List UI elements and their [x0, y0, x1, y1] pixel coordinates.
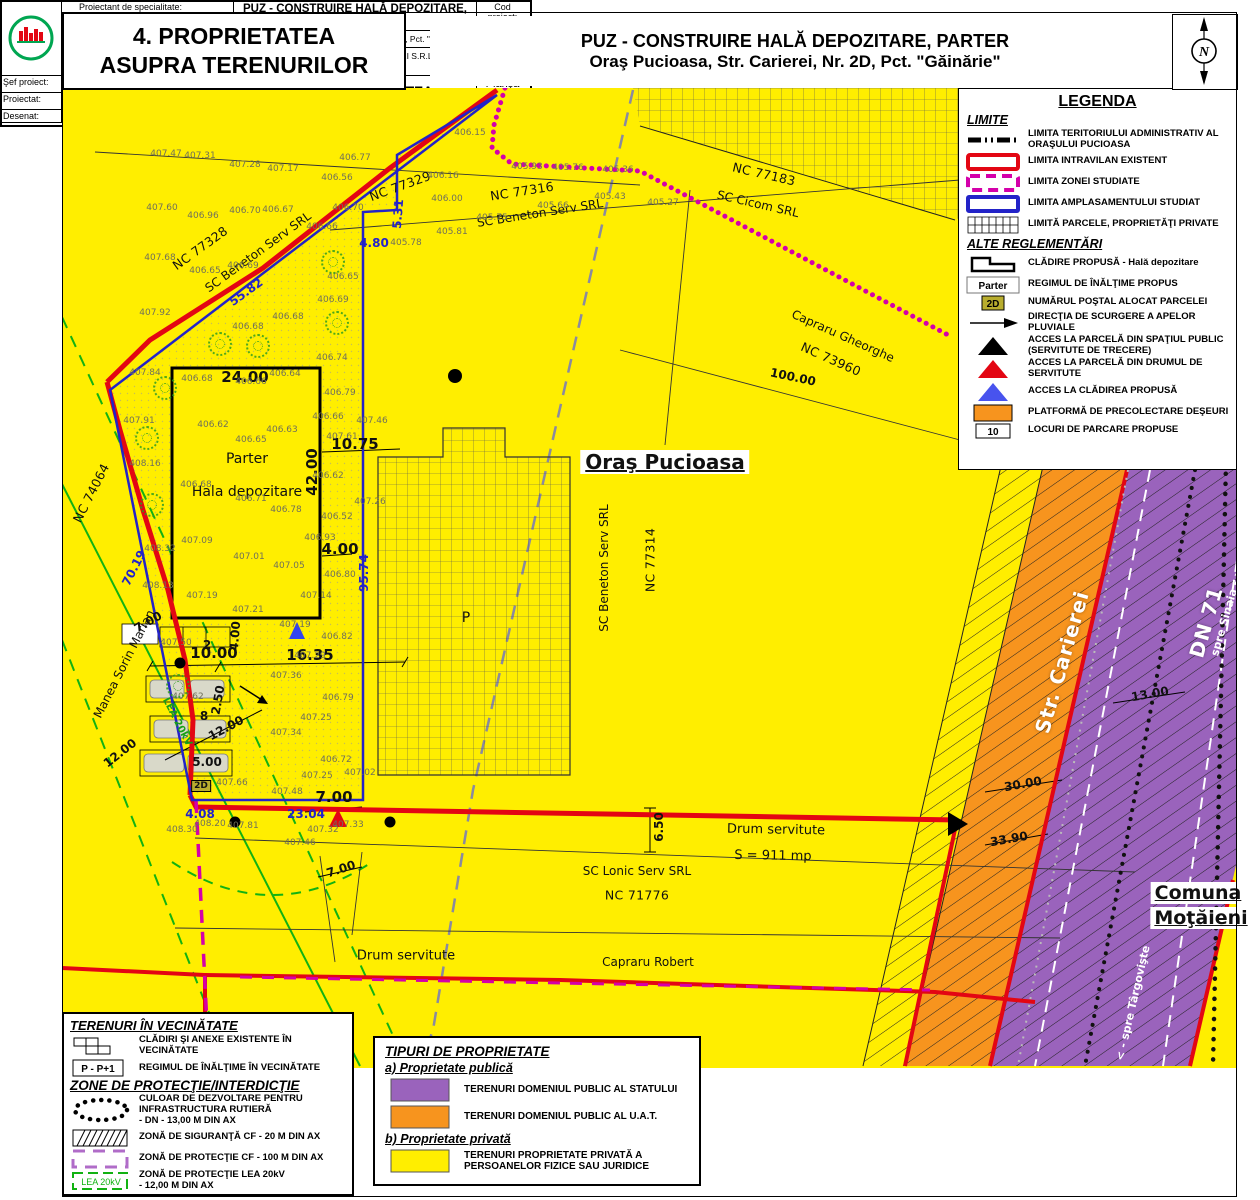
legend-item-label: DIRECŢIA DE SCURGERE A APELOR PLUVIALE	[1028, 312, 1230, 334]
legend-item-label: ZONĂ DE SIGURANŢĂ CF - 20 M DIN AX	[139, 1132, 320, 1143]
legend-item: ACCES LA PARCELĂ DIN DRUMUL DE SERVITUTE	[965, 358, 1230, 380]
tri-blue-icon	[965, 381, 1021, 403]
legend-item: 10LOCURI DE PARCARE PROPUSE	[965, 423, 1230, 439]
legend-item-label: TERENURI PROPRIETATE PRIVATĂ A PERSOANEL…	[464, 1150, 689, 1173]
svg-text:P - P+1: P - P+1	[81, 1064, 115, 1075]
legend-item: LIMITA ZONEI STUDIATE	[965, 173, 1230, 193]
tri-red-icon	[965, 358, 1021, 380]
legend-title: LEGENDA	[965, 93, 1230, 111]
legend-item: CULOAR DE DEZVOLTARE PENTRU INFRASTRUCTU…	[70, 1094, 346, 1127]
legend-item: ACCES LA PARCELĂ DIN SPAŢIUL PUBLIC (SER…	[965, 335, 1230, 357]
legend-item: ParterREGIMUL DE ÎNĂLŢIME PROPUS	[965, 276, 1230, 294]
tipuri-title: TIPURI DE PROPRIETATE	[385, 1044, 689, 1059]
tri-black-icon	[965, 335, 1021, 357]
legend-item: TERENURI DOMENIUL PUBLIC AL U.A.T.	[385, 1104, 689, 1130]
legend-alte-heading: ALTE REGLEMENTĂRI	[967, 237, 1230, 251]
legend-item: TERENURI DOMENIUL PUBLIC AL STATULUI	[385, 1077, 689, 1103]
legend-item-label: ACCES LA CLĂDIREA PROPUSĂ	[1028, 386, 1177, 397]
parking-parcel	[378, 428, 570, 775]
legend-item: CLĂDIRE PROPUSĂ - Hală depozitare	[965, 253, 1230, 275]
project-title-line2: Oraş Pucioasa, Str. Carierei, Nr. 2D, Pc…	[589, 52, 1000, 72]
dots-ellipse-icon	[70, 1097, 132, 1123]
proiectant-label: Proiectant de specialitate:	[79, 2, 230, 12]
legend-item-label: CLĂDIRI ŞI ANEXE EXISTENTE ÎN VECINĂTATE	[139, 1035, 346, 1057]
legend-item: CLĂDIRI ŞI ANEXE EXISTENTE ÎN VECINĂTATE	[70, 1034, 346, 1058]
box10-icon: 10	[965, 423, 1021, 439]
vecinatate-panel: TERENURI ÎN VECINĂTATE CLĂDIRI ŞI ANEXE …	[62, 1012, 354, 1196]
legend-item-label: REGIMUL DE ÎNĂLŢIME PROPUS	[1028, 279, 1178, 290]
svg-text:LEA 20kV: LEA 20kV	[81, 1177, 121, 1187]
tipuri-a-heading: a) Proprietate publică	[385, 1061, 689, 1075]
legend-item: LEA 20kVZONĂ DE PROTECŢIE LEA 20kV - 12,…	[70, 1170, 346, 1192]
pole-dot	[175, 658, 186, 669]
pole-dot	[230, 817, 241, 828]
north-arrow: N	[1172, 14, 1238, 90]
svg-text:10: 10	[987, 427, 999, 438]
vecinatate-title: TERENURI ÎN VECINĂTATE	[70, 1018, 346, 1033]
legend-item-label: CLĂDIRE PROPUSĂ - Hală depozitare	[1028, 258, 1199, 269]
legend-item: 2DNUMĂRUL POŞTAL ALOCAT PARCELEI	[965, 295, 1230, 311]
legend-item-label: CULOAR DE DEZVOLTARE PENTRU INFRASTRUCTU…	[139, 1094, 346, 1127]
blue-rect-icon	[965, 194, 1021, 214]
legend-item: DIRECŢIA DE SCURGERE A APELOR PLUVIALE	[965, 312, 1230, 334]
legend-item: TERENURI PROPRIETATE PRIVATĂ A PERSOANEL…	[385, 1148, 689, 1174]
legend-panel: LEGENDA LIMITE LIMITA TERITORIULUI ADMIN…	[958, 88, 1237, 470]
sheet-title-line1: 4. PROPRIETATEA	[133, 22, 335, 51]
legend-item: LIMITA INTRAVILAN EXISTENT	[965, 152, 1230, 172]
legend-item-label: LOCURI DE PARCARE PROPUSE	[1028, 425, 1178, 436]
magenta-rect-icon	[965, 173, 1021, 193]
sw-yellow-icon	[385, 1148, 457, 1174]
project-title: PUZ - CONSTRUIRE HALĂ DEPOZITARE, PARTER…	[430, 16, 1160, 86]
legend-item: ACCES LA CLĂDIREA PROPUSĂ	[965, 381, 1230, 403]
tipuri-b-heading: b) Proprietate privată	[385, 1132, 689, 1146]
logo-cell	[0, 0, 62, 76]
legend-item-label: ACCES LA PARCELĂ DIN SPAŢIUL PUBLIC (SER…	[1028, 335, 1230, 357]
legend-item-label: PLATFORMĂ DE PRECOLECTARE DEŞEURI	[1028, 407, 1228, 418]
pole-dot	[448, 369, 462, 383]
lea-icon: LEA 20kV	[70, 1171, 132, 1191]
blocks-icon	[70, 1034, 132, 1058]
zone-title: ZONE DE PROTECŢIE/INTERDICŢIE	[70, 1078, 346, 1093]
tipuri-panel: TIPURI DE PROPRIETATE a) Proprietate pub…	[373, 1036, 701, 1186]
arrow-icon	[965, 316, 1021, 330]
svg-text:2D: 2D	[987, 299, 1000, 310]
orange-rect-icon	[965, 404, 1021, 422]
project-title-line1: PUZ - CONSTRUIRE HALĂ DEPOZITARE, PARTER	[581, 31, 1009, 52]
plan-sheet: NC 77329NC 77316SC Beneton Serv SRLNC 77…	[0, 0, 1260, 1200]
pole-dot	[385, 817, 396, 828]
badge2d-icon: 2D	[965, 295, 1021, 311]
grid-rect-icon	[965, 215, 1021, 235]
legend-item: PLATFORMĂ DE PRECOLECTARE DEŞEURI	[965, 404, 1230, 422]
cf-dash-icon	[70, 1149, 132, 1169]
red-rect-icon	[965, 152, 1021, 172]
building-icon	[965, 253, 1021, 275]
legend-item-label: TERENURI DOMENIUL PUBLIC AL STATULUI	[464, 1084, 677, 1096]
sw-orange-icon	[385, 1104, 457, 1130]
company-logo-icon	[5, 12, 57, 64]
legend-item-label: LIMITĂ PARCELE, PROPRIETĂŢI PRIVATE	[1028, 219, 1219, 230]
legend-limite-heading: LIMITE	[967, 113, 1230, 127]
legend-item: LIMITĂ PARCELE, PROPRIETĂŢI PRIVATE	[965, 215, 1230, 235]
legend-item: ZONĂ DE SIGURANŢĂ CF - 20 M DIN AX	[70, 1128, 346, 1148]
legend-item-label: LIMITA INTRAVILAN EXISTENT	[1028, 156, 1167, 167]
pp1-icon: P - P+1	[70, 1059, 132, 1077]
legend-item: P - P+1REGIMUL DE ÎNĂLŢIME ÎN VECINĂTATE	[70, 1059, 346, 1077]
legend-item-label: TERENURI DOMENIUL PUBLIC AL U.A.T.	[464, 1111, 657, 1123]
legend-item-label: ZONĂ DE PROTECŢIE CF - 100 M DIN AX	[139, 1153, 323, 1164]
legend-item-label: REGIMUL DE ÎNĂLŢIME ÎN VECINĂTATE	[139, 1063, 320, 1074]
admin-icon	[965, 130, 1021, 150]
svg-text:Parter: Parter	[979, 281, 1008, 292]
hatch-rect-icon	[70, 1128, 132, 1148]
sheet-title-line2: ASUPRA TERENURILOR	[100, 51, 369, 80]
parter-icon: Parter	[965, 276, 1021, 294]
legend-item-label: LIMITA ZONEI STUDIATE	[1028, 177, 1140, 188]
roles-label-cell: Şef proiect: Proiectat: Desenat:	[0, 76, 62, 123]
legend-item: ZONĂ DE PROTECŢIE CF - 100 M DIN AX	[70, 1149, 346, 1169]
proposed-building	[172, 368, 320, 618]
svg-text:N: N	[1198, 45, 1210, 60]
legend-item: LIMITA AMPLASAMENTULUI STUDIAT	[965, 194, 1230, 214]
legend-item: LIMITA TERITORIULUI ADMINISTRATIV AL ORA…	[965, 129, 1230, 151]
sheet-title-box: 4. PROPRIETATEA ASUPRA TERENURILOR	[62, 12, 406, 90]
legend-item-label: LIMITA AMPLASAMENTULUI STUDIAT	[1028, 198, 1200, 209]
legend-item-label: NUMĂRUL POŞTAL ALOCAT PARCELEI	[1028, 297, 1207, 308]
sw-purple-icon	[385, 1077, 457, 1103]
legend-item-label: ZONĂ DE PROTECŢIE LEA 20kV - 12,00 M DIN…	[139, 1170, 285, 1192]
legend-item-label: ACCES LA PARCELĂ DIN DRUMUL DE SERVITUTE	[1028, 358, 1230, 380]
compass-icon: N	[1173, 15, 1235, 87]
legend-item-label: LIMITA TERITORIULUI ADMINISTRATIV AL ORA…	[1028, 129, 1230, 151]
